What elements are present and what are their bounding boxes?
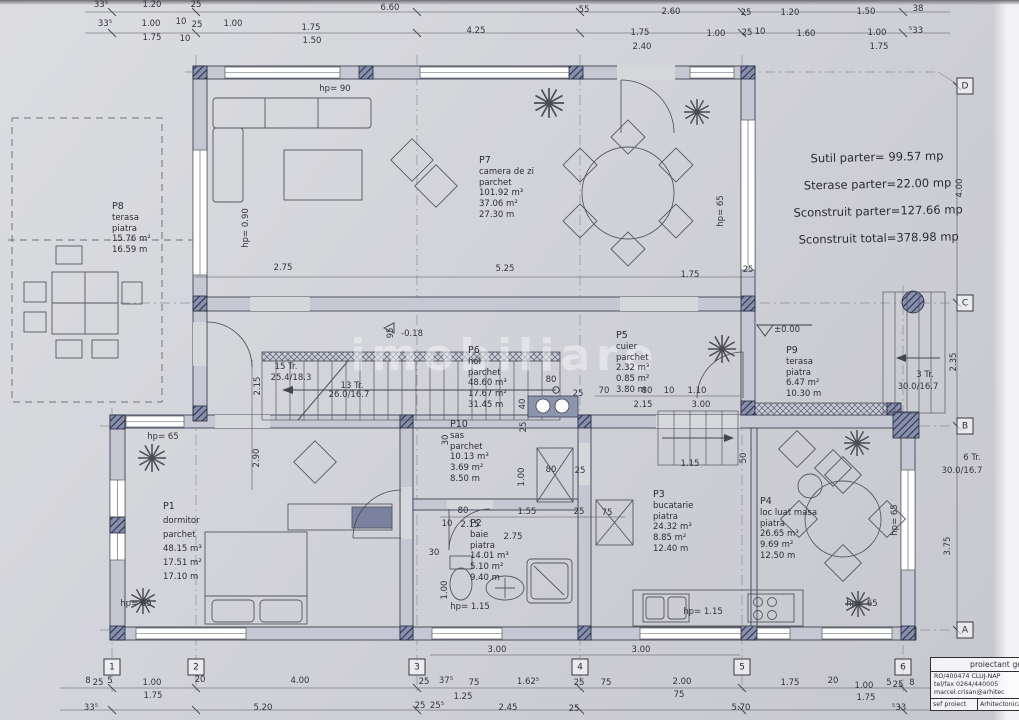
dim-label: 8 — [85, 676, 90, 686]
grid-bubble-1: 1 — [104, 659, 121, 676]
room-info: piatra — [786, 368, 821, 379]
dim-label: 25 — [573, 389, 584, 399]
room-info: 6.47 m² — [786, 378, 821, 389]
grid-bubble-3: 3 — [409, 659, 426, 676]
grid-bubble-2: 2 — [188, 659, 205, 676]
dim-label: 75 — [469, 678, 480, 688]
room-info: 12.40 m — [653, 544, 693, 555]
room-info: 101.92 m³ — [479, 188, 534, 199]
dim-label: 25 — [574, 678, 585, 688]
dim-label: 3.75 — [943, 537, 953, 556]
room-info: 14.01 m³ — [470, 551, 509, 562]
grid-bubble-D: D — [957, 78, 974, 95]
room-info: dormitor — [163, 514, 202, 528]
room-info: 48.15 m³ — [163, 542, 202, 556]
dim-label: 25 — [743, 265, 754, 275]
room-info: 17.67 m² — [468, 389, 507, 400]
room-info: bucatarie — [653, 501, 693, 512]
dim-label: hp= 65 — [147, 432, 178, 442]
dim-label: 25⁵ — [430, 701, 444, 711]
dim-label: 2.90 — [252, 449, 262, 468]
dim-label: hp= 65 — [846, 599, 877, 609]
room-info: 17.10 m — [163, 570, 202, 584]
room-info: piatra — [760, 519, 817, 530]
dim-label: 1.75 — [631, 28, 650, 38]
dim-label: 10 — [176, 17, 187, 27]
dim-label: 3.00 — [488, 645, 507, 655]
dim-label: 70 — [599, 386, 610, 396]
title-block-firm: Arhitectonica — [978, 699, 1019, 710]
room-info: piatra — [112, 224, 151, 235]
room-label-p9: P9terasapiatra6.47 m²10.30 m — [786, 346, 821, 400]
grid-bubble-A: A — [957, 622, 974, 639]
dim-label: 1.55 — [518, 507, 537, 517]
room-info: camera de zi — [479, 167, 534, 178]
dim-label: 25 — [93, 678, 104, 688]
room-id: P4 — [760, 497, 817, 508]
dim-label: 33⁵ — [84, 703, 98, 713]
dim-label: 1.50 — [303, 36, 322, 46]
dim-label: 6.60 — [381, 3, 400, 13]
room-id: P9 — [786, 346, 821, 357]
dim-label: 37⁵ — [439, 676, 453, 686]
dim-label: ⁵33 — [909, 26, 923, 36]
dim-label: 2.60 — [662, 7, 681, 17]
dim-label: hp= 1.15 — [683, 607, 723, 617]
dim-label: 1.20 — [781, 8, 800, 18]
room-info: terasa — [112, 213, 151, 224]
room-id: P1 — [163, 500, 202, 514]
room-info: parchet — [479, 178, 534, 189]
dim-label: hp= 65 — [890, 504, 900, 535]
dim-label: 1.75 — [781, 678, 800, 688]
dim-label: 30.0/16.7 — [898, 382, 939, 392]
dim-label: 20 — [195, 675, 206, 685]
dim-label: 33⁵ — [94, 0, 108, 10]
dim-label: 2.00 — [673, 677, 692, 687]
dim-label: 1.00 — [224, 19, 243, 29]
dim-label: 1.75 — [144, 691, 163, 701]
room-info: 3.80 m — [616, 385, 649, 396]
room-info: parchet — [616, 353, 649, 364]
dim-label: 2.15 — [253, 377, 263, 396]
dim-label: 3 Tr. — [916, 370, 933, 380]
room-info: parchet — [163, 528, 202, 542]
room-info: 16.59 m — [112, 245, 151, 256]
room-info: piatra — [653, 512, 693, 523]
dim-label: 3.00 — [692, 400, 711, 410]
grid-bubble-6: 6 — [895, 659, 912, 676]
room-info: 8.50 m — [450, 474, 489, 485]
dim-label: hp= 0.90 — [241, 208, 251, 248]
dim-label: 25 — [415, 701, 426, 711]
grid-bubble-B: B — [957, 418, 974, 435]
dim-label: 1.20 — [143, 0, 162, 10]
dim-label: 4.25 — [467, 26, 486, 36]
dim-label: 8 — [909, 678, 914, 688]
room-info: 12.50 m — [760, 551, 817, 562]
dim-label: 20 — [828, 676, 839, 686]
dim-label: 1.75 — [143, 33, 162, 43]
room-info: cuier — [616, 342, 649, 353]
grid-bubble-4: 4 — [572, 659, 589, 676]
dim-label: 6 Tr. — [963, 453, 980, 463]
dim-label: 25 — [575, 466, 586, 476]
dim-label: 40 — [518, 399, 528, 410]
floor-plan-sheet: imobiliare Sutil parter= 99.57 mpSterase… — [0, 0, 1019, 720]
room-info: 2.32 m³ — [616, 363, 649, 374]
title-block-role: sef proiect — [931, 699, 978, 710]
dim-label: 80 — [458, 506, 469, 516]
room-info: loc luat masa — [760, 508, 817, 519]
dim-label: 50 — [739, 453, 749, 464]
dim-label: 1.10 — [688, 386, 707, 396]
title-block-address: RO/400474 CLUJ-NAP — [934, 673, 1019, 681]
dim-label: 10 — [755, 27, 766, 37]
dim-label: 25 — [574, 507, 585, 517]
dim-label: hp= 1.15 — [450, 602, 490, 612]
dim-label: 2.40 — [633, 42, 652, 52]
room-id: P2 — [470, 519, 509, 530]
title-block-phone: tel/fax 0264/440005 — [934, 681, 1019, 689]
room-info: 17.51 m² — [163, 556, 202, 570]
room-info: 10.30 m — [786, 389, 821, 400]
dim-label: 3.00 — [632, 645, 651, 655]
dim-label: 30 — [429, 548, 440, 558]
room-info: 9.69 m² — [760, 540, 817, 551]
dim-label: 1.75 — [870, 42, 889, 52]
room-label-p2: P2baiepiatra14.01 m³5.10 m²9.40 m — [470, 519, 509, 584]
dim-label: 75 — [601, 678, 612, 688]
dim-label: 80 — [546, 375, 557, 385]
dim-label: 75 — [602, 508, 613, 518]
room-info: parchet — [468, 368, 507, 379]
dim-label: 25.4/18.3 — [271, 373, 312, 383]
dim-label: 1.62⁵ — [517, 677, 539, 687]
room-label-p7: P7camera de ziparchet101.92 m³37.06 m²27… — [479, 156, 534, 221]
dim-label: 1.75 — [302, 23, 321, 33]
room-id: P8 — [112, 202, 151, 213]
room-label-p6: P6holparchet48.60 m³17.67 m²31.45 m — [468, 346, 507, 411]
room-info: piatra — [470, 541, 509, 552]
room-info: 37.06 m² — [479, 199, 534, 210]
room-info: 31.45 m — [468, 400, 507, 411]
dim-label: 1.00 — [517, 468, 527, 487]
room-info: 48.60 m³ — [468, 378, 507, 389]
dim-label: hp= 65 — [120, 599, 151, 609]
dim-label: 1.25 — [454, 692, 473, 702]
dim-label: 15 Tr. — [275, 362, 298, 372]
dim-label: 38 — [913, 4, 924, 14]
dim-label: 55 — [579, 5, 590, 15]
dim-label: 25 — [192, 20, 203, 30]
dim-label: 25 — [519, 422, 529, 433]
dim-label: 2.45 — [499, 703, 518, 713]
dim-label: 4.00 — [955, 179, 965, 198]
title-block-email: marcel.crisan@arhitec — [934, 689, 1019, 697]
dim-label: 10 — [180, 34, 191, 44]
room-label-p1: P1dormitorparchet48.15 m³17.51 m²17.10 m — [163, 500, 202, 584]
room-id: P6 — [468, 346, 507, 357]
dim-label: 1.75 — [857, 693, 876, 703]
room-info: sas — [450, 431, 489, 442]
room-info: baie — [470, 530, 509, 541]
room-id: P10 — [450, 420, 489, 431]
room-info: 27.30 m — [479, 210, 534, 221]
room-id: P3 — [653, 490, 693, 501]
dim-label: 5 — [886, 678, 891, 688]
dim-label: 10 — [442, 519, 453, 529]
room-label-p3: P3bucatariepiatra24.32 m³8.85 m²12.40 m — [653, 490, 693, 555]
room-label-p8: P8terasapiatra15.76 m²16.59 m — [112, 202, 151, 256]
room-label-p5: P5cuierparchet2.32 m³0.85 m²3.80 m — [616, 331, 649, 396]
dim-label: 1.00 — [440, 581, 450, 600]
dim-label: 1.50 — [857, 7, 876, 17]
dim-label: 25 — [419, 677, 430, 687]
dim-label: 33⁵ — [98, 19, 112, 29]
room-info: 24.32 m³ — [653, 522, 693, 533]
room-label-p4: P4loc luat masapiatra26.65 m³9.69 m²12.5… — [760, 497, 817, 562]
grid-bubble-C: C — [957, 295, 974, 312]
dim-label: 25 — [893, 680, 904, 690]
dim-label: 25 — [741, 8, 752, 18]
dim-label: 1.00 — [143, 678, 162, 688]
dim-label: 25 — [742, 28, 753, 38]
title-block: proiectant general RO/400474 CLUJ-NAP te… — [930, 657, 1019, 711]
dim-label: 4.00 — [291, 676, 310, 686]
dim-label: 5.20 — [254, 703, 273, 713]
grid-bubble-5: 5 — [734, 659, 751, 676]
room-info: parchet — [450, 442, 489, 453]
room-info: 8.85 m² — [653, 533, 693, 544]
dim-label: 2.15 — [634, 400, 653, 410]
dim-label: 2.75 — [274, 263, 293, 273]
dim-label: 25 — [569, 704, 580, 714]
dim-label: hp= 90 — [319, 84, 350, 94]
dim-label: 5.25 — [496, 264, 515, 274]
room-info: terasa — [786, 357, 821, 368]
room-info: 10.13 m³ — [450, 452, 489, 463]
room-info: 26.65 m³ — [760, 529, 817, 540]
dim-label: 5.70 — [732, 703, 751, 713]
room-info: 3.69 m² — [450, 463, 489, 474]
dim-label: ±0.00 — [774, 325, 800, 335]
dim-label: 80 — [546, 465, 557, 475]
annotation-layer: 33⁵1.20256.60552.60251.201.503833⁵1.0010… — [0, 0, 1019, 720]
dim-label: 1.00 — [855, 681, 874, 691]
room-info: 5.10 m² — [470, 562, 509, 573]
dim-label: 26.0/16.7 — [329, 390, 370, 400]
dim-label: 25 — [191, 0, 202, 10]
dim-label: 1.00 — [142, 19, 161, 29]
room-info: 15.76 m² — [112, 234, 151, 245]
dim-label: 1.00 — [707, 29, 726, 39]
room-id: P7 — [479, 156, 534, 167]
dim-label: 1.75 — [681, 270, 700, 280]
dim-label: 1.00 — [868, 28, 887, 38]
dim-label: 1.60 — [797, 29, 816, 39]
dim-label: 30.0/16.7 — [942, 466, 983, 476]
dim-label: 75 — [674, 690, 685, 700]
title-block-header: proiectant general — [931, 658, 1019, 672]
dim-label: 1.15 — [681, 459, 700, 469]
dim-label: hp= 65 — [716, 195, 726, 226]
room-info: hol — [468, 357, 507, 368]
room-info: 0.85 m² — [616, 374, 649, 385]
dim-label: -0.18 — [401, 329, 423, 339]
dim-label: 95 — [386, 328, 396, 339]
dim-label: 2.35 — [949, 353, 959, 372]
room-id: P5 — [616, 331, 649, 342]
room-info: 9.40 m — [470, 573, 509, 584]
dim-label: ⁵33 — [892, 703, 906, 713]
room-label-p10: P10sasparchet10.13 m³3.69 m²8.50 m — [450, 420, 489, 485]
dim-label: 10 — [664, 386, 675, 396]
dim-label: 5 — [107, 676, 112, 686]
